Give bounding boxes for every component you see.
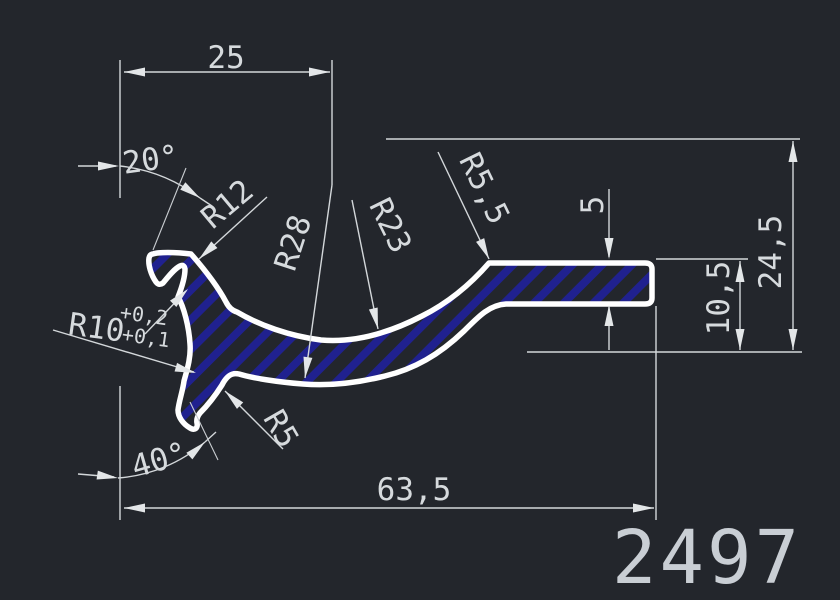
part-number: 2497	[612, 515, 802, 600]
dim-bottom-length-label: 63,5	[377, 472, 452, 508]
dim-top-width-label: 25	[207, 40, 244, 76]
dim-thickness-label: 5	[575, 196, 611, 215]
cad-viewport: 25 20° R12 R28 R23 R5,5 5	[0, 0, 840, 600]
dim-height-step-label: 10,5	[701, 261, 737, 336]
cad-canvas[interactable]: 25 20° R12 R28 R23 R5,5 5	[0, 0, 840, 600]
dim-height-total-label: 24,5	[753, 215, 789, 290]
